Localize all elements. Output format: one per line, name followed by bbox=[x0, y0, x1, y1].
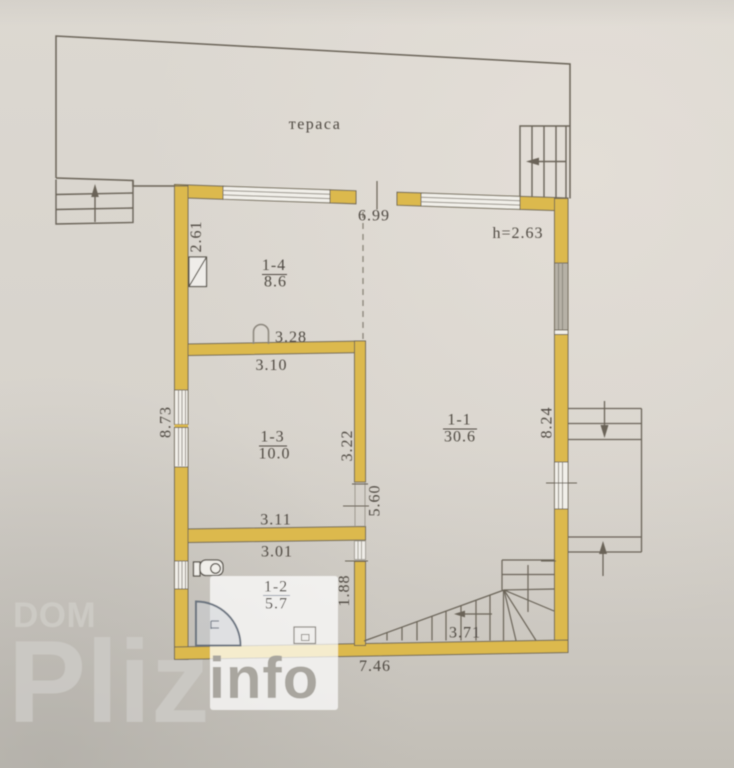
svg-text:1-3: 1-3 bbox=[260, 429, 284, 446]
svg-text:1-2: 1-2 bbox=[264, 579, 288, 596]
svg-text:3.10: 3.10 bbox=[256, 357, 288, 374]
svg-text:1-4: 1-4 bbox=[262, 257, 286, 274]
svg-text:8.73: 8.73 bbox=[158, 406, 175, 438]
svg-text:5.7: 5.7 bbox=[265, 596, 288, 613]
svg-text:7.46: 7.46 bbox=[359, 658, 391, 675]
svg-text:3.22: 3.22 bbox=[339, 430, 356, 462]
svg-text:5.60: 5.60 bbox=[367, 485, 384, 517]
svg-text:8.24: 8.24 bbox=[539, 407, 556, 439]
svg-text:3.28: 3.28 bbox=[275, 329, 307, 346]
svg-text:Pliz: Pliz bbox=[8, 616, 210, 747]
svg-text:info: info bbox=[209, 646, 319, 711]
svg-text:2.61: 2.61 bbox=[188, 221, 205, 253]
svg-text:h=2.63: h=2.63 bbox=[492, 225, 543, 242]
svg-text:1-1: 1-1 bbox=[447, 412, 471, 429]
svg-text:тераса: тераса bbox=[289, 116, 342, 133]
svg-text:3.11: 3.11 bbox=[260, 512, 291, 529]
svg-text:10.0: 10.0 bbox=[259, 446, 291, 463]
svg-text:8.6: 8.6 bbox=[264, 274, 287, 291]
svg-text:30.6: 30.6 bbox=[444, 429, 476, 446]
svg-text:3.01: 3.01 bbox=[261, 544, 293, 561]
svg-text:3.71: 3.71 bbox=[449, 625, 481, 642]
svg-text:6.99: 6.99 bbox=[358, 208, 390, 225]
svg-text:1.88: 1.88 bbox=[336, 575, 353, 607]
